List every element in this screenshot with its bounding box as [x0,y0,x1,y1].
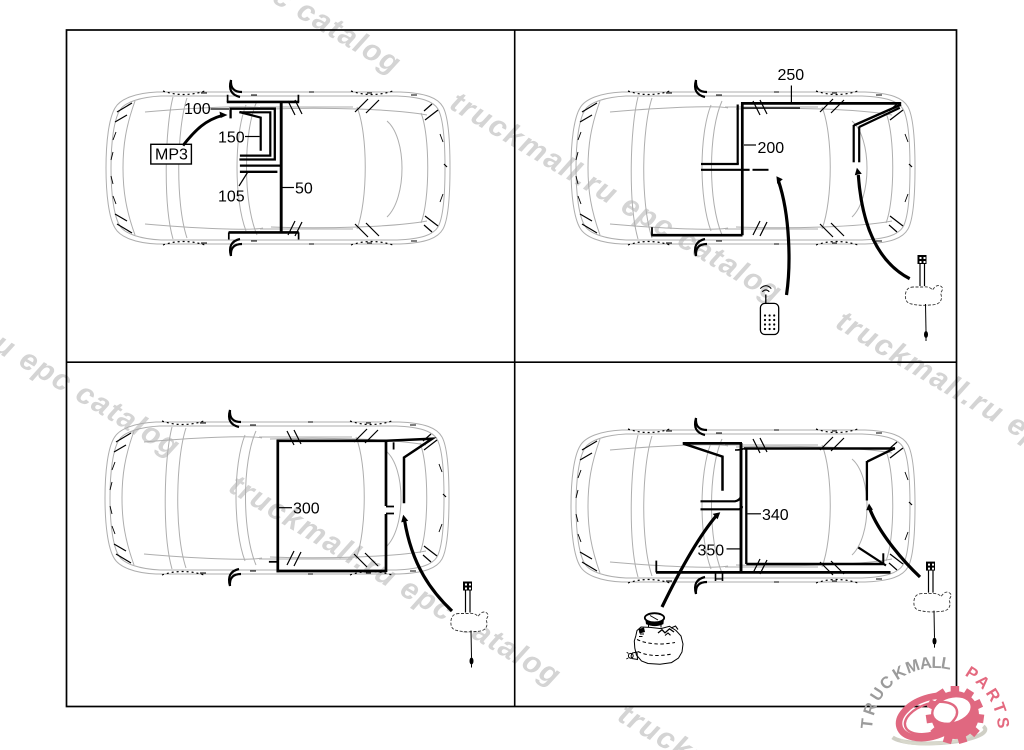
svg-text:350: 350 [698,543,725,560]
svg-text:truckmall.ru epc catalog: truckmall.ru epc catalog [224,468,568,693]
svg-text:340: 340 [762,507,789,524]
svg-text:100: 100 [184,101,211,118]
svg-text:truckmall.ru epc catalog: truckmall.ru epc catalog [831,304,1024,529]
svg-text:MP3: MP3 [155,147,188,164]
svg-text:truckmall.ru epc catalog: truckmall.ru epc catalog [0,239,186,464]
svg-text:200: 200 [758,140,785,157]
svg-text:50: 50 [295,181,313,198]
svg-text:150: 150 [218,130,245,147]
svg-text:R: R [860,700,881,717]
svg-text:S: S [993,716,1012,729]
svg-text:T: T [858,718,877,730]
svg-text:truckmall.ru epc catalog: truckmall.ru epc catalog [64,0,408,81]
svg-text:105: 105 [218,189,245,206]
svg-text:300: 300 [293,501,320,518]
svg-text:250: 250 [778,67,805,84]
svg-text:L: L [940,654,953,673]
